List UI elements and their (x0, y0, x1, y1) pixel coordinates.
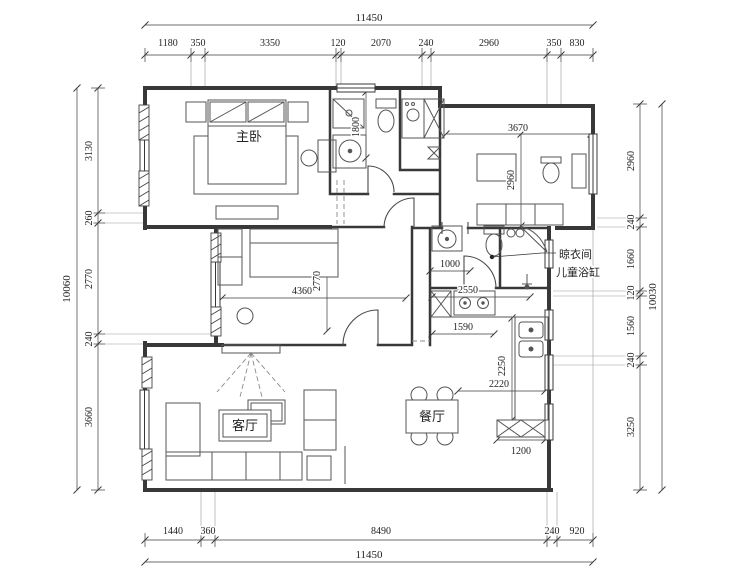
armchair (304, 420, 336, 450)
label-master-bedroom: 主卧 (236, 129, 262, 144)
dim-right-seg: 240 (626, 353, 637, 368)
dim-top-seg: 2960 (479, 38, 499, 49)
dim-text-left: 10060 3130 260 2770 240 3660 (61, 141, 95, 427)
armchair (304, 390, 336, 420)
dim-left-seg: 3130 (84, 141, 95, 161)
dim-child-width: 3670 (508, 123, 528, 134)
furniture-master-bedroom (186, 100, 336, 219)
knob (516, 229, 524, 237)
radiator (139, 171, 149, 206)
extension-lines (104, 62, 634, 533)
valve-symbol (428, 147, 440, 159)
dim-right-seg: 120 (626, 286, 637, 301)
furniture-child-room (477, 154, 586, 225)
dim-top-seg: 120 (331, 38, 346, 49)
dim-top-seg: 830 (570, 38, 585, 49)
dim-kitchen-width: 2550 (458, 285, 478, 296)
dim-vanity-width: 1000 (440, 259, 460, 270)
door-child-room-threshold (442, 222, 468, 234)
fixtures-laundry (402, 99, 444, 159)
dim-left-seg: 260 (84, 211, 95, 226)
dim-bottom-seg: 1440 (163, 526, 183, 537)
dim-left-seg: 240 (84, 332, 95, 347)
radiator (142, 449, 152, 480)
fixtures-bath2 (432, 226, 547, 289)
dim-text-bottom: 1440 360 8490 240 920 11450 (163, 526, 585, 561)
dim-top-seg: 2070 (371, 38, 391, 49)
dim-bed2-depth: 2770 (312, 271, 323, 291)
knob (507, 229, 515, 237)
dim-right-total: 10030 (647, 283, 659, 311)
tv-projection-dashes (217, 353, 285, 397)
side-table (307, 456, 331, 480)
radiator (142, 357, 152, 388)
dim-right-seg: 240 (626, 215, 637, 230)
floor-plan-drawing: 11450 1180 350 3350 120 2070 240 2960 35… (0, 0, 740, 578)
nightstand (186, 102, 206, 122)
dim-top-total: 11450 (355, 12, 383, 24)
faucet-symbol (522, 274, 532, 284)
door-bath1 (368, 166, 394, 194)
dim-bath-depth: 1800 (351, 117, 362, 137)
fixtures-bath1 (333, 99, 396, 168)
dim-right-seg: 1660 (626, 249, 637, 269)
callout-texts: 晾衣间 儿童浴缸 (556, 247, 600, 279)
callout-child-bathtub: 儿童浴缸 (556, 265, 600, 279)
dim-bottom-seg: 240 (545, 526, 560, 537)
label-dining-room: 餐厅 (419, 409, 445, 424)
dim-left-seg: 2770 (84, 269, 95, 289)
low-cabinet (497, 420, 545, 437)
dim-counter-width: 1590 (453, 322, 473, 333)
stool2 (237, 308, 253, 324)
dim-bottom-seg: 8490 (371, 526, 391, 537)
cased-opening-dashes (337, 180, 430, 341)
stool (301, 150, 317, 166)
dimension-ticks (74, 22, 666, 566)
dim-top-seg: 3350 (260, 38, 280, 49)
door-hall-corridor (384, 198, 414, 228)
dim-text-top: 11450 1180 350 3350 120 2070 240 2960 35… (158, 12, 584, 49)
dim-left-seg: 3660 (84, 407, 95, 427)
floor-plan-page: 11450 1180 350 3350 120 2070 240 2960 35… (0, 0, 740, 578)
corner-tub (520, 226, 547, 252)
dim-dining-width: 2220 (489, 379, 509, 390)
radiator (211, 307, 221, 336)
wardrobe (477, 204, 563, 225)
dim-bottom-seg: 360 (201, 526, 216, 537)
dim-top-seg: 240 (419, 38, 434, 49)
dim-top-seg: 350 (191, 38, 206, 49)
radiator (211, 233, 221, 262)
bed2 (250, 229, 338, 277)
toilet-bowl (378, 110, 394, 132)
drain (346, 110, 352, 116)
chair-back (541, 157, 561, 163)
furniture-living (166, 345, 345, 484)
dim-cabinet-width: 1200 (511, 446, 531, 457)
sofa-chaise (166, 403, 200, 456)
dim-kitchen-depth: 2250 (497, 356, 508, 376)
dim-child-depth: 2960 (506, 170, 517, 190)
callout-drying-room: 晾衣间 (559, 247, 592, 261)
dim-right-seg: 2960 (626, 151, 637, 171)
dim-bottom-total: 11450 (355, 549, 383, 561)
dim-top-seg: 350 (547, 38, 562, 49)
toilet-tank (376, 99, 396, 108)
dim-right-seg: 3250 (626, 417, 637, 437)
basin-drain (348, 149, 352, 153)
nightstand (288, 102, 308, 122)
chair (543, 163, 559, 183)
dim-left-total: 10060 (61, 275, 73, 303)
label-living-room: 客厅 (232, 418, 258, 433)
dim-right-seg: 1560 (626, 316, 637, 336)
dim-bed2-width: 4360 (292, 286, 312, 297)
dim-bottom-seg: 920 (570, 526, 585, 537)
door-bedroom2 (343, 310, 378, 345)
side-unit (572, 154, 586, 188)
dim-top-seg: 1180 (158, 38, 178, 49)
radiator (139, 105, 149, 140)
tv-stand (216, 206, 278, 219)
